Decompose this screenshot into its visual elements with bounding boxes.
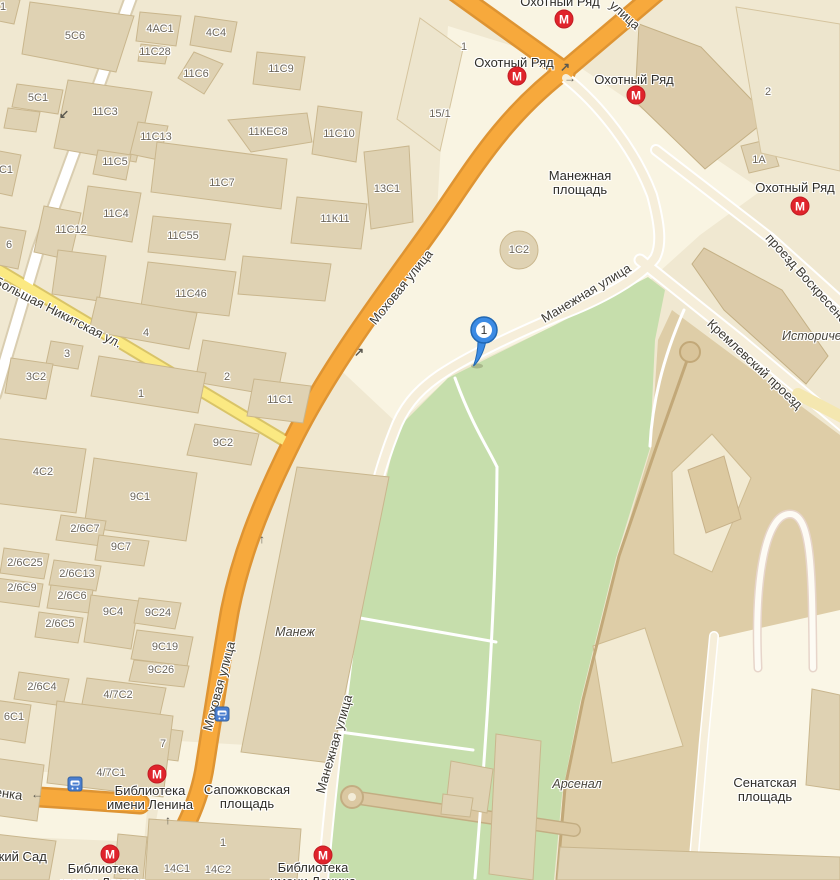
building-label: 1: [0, 1, 6, 13]
building-label: 11КЕС8: [248, 126, 287, 138]
building-label: 2/6С5: [45, 618, 74, 630]
place-label: Сенатскаяплощадь: [733, 776, 796, 804]
place-label: Манежнаяплощадь: [549, 169, 612, 197]
metro-station-icon[interactable]: М: [148, 765, 167, 784]
map-canvas[interactable]: 15С64АС14С411С2811С611С95С111С311С1311КЕ…: [0, 0, 840, 880]
building-label: 11С7: [209, 177, 234, 189]
place-label: Сапожковскаяплощадь: [204, 783, 290, 811]
street-label: проезд Воскресенские Ворота: [762, 230, 840, 375]
bus-stop-icon[interactable]: [68, 777, 83, 792]
building-label: 11С13: [140, 131, 172, 143]
building-label: 11С10: [323, 128, 355, 140]
landmark-label: Исторический музей: [782, 329, 840, 343]
one-way-arrow: ↗: [354, 345, 364, 359]
building-label: 9С26: [148, 664, 174, 676]
landmark-label: Манеж: [275, 625, 315, 639]
building-label: 6С1: [4, 711, 24, 723]
street-label: Большая Никитская ул.: [0, 273, 124, 351]
place-label: Александровский Сад: [0, 850, 47, 864]
building-label: 11С46: [175, 288, 207, 300]
street-label: Манежная улица: [538, 260, 633, 325]
one-way-arrow: ←: [31, 787, 43, 801]
map-labels-layer: 15С64АС14С411С2811С611С95С111С311С1311КЕ…: [0, 0, 840, 880]
building-label: 4С4: [206, 27, 226, 39]
building-label: 9С24: [145, 607, 171, 619]
building-label: 2/6С25: [7, 557, 42, 569]
metro-station-icon[interactable]: М: [627, 86, 646, 105]
one-way-arrow: →: [564, 71, 576, 85]
building-label: 4/7С1: [96, 767, 125, 779]
landmark-label: Арсенал: [552, 777, 601, 791]
building-label: 1С2: [509, 244, 529, 256]
one-way-arrow: ↙: [59, 107, 69, 121]
building-label: 11К11: [320, 213, 349, 225]
building-label: 15/1: [429, 108, 450, 120]
building-label: 3С2: [26, 371, 46, 383]
metro-station-icon[interactable]: М: [101, 845, 120, 864]
building-label: 14С1: [164, 863, 190, 875]
building-label: 11С28: [139, 46, 171, 58]
one-way-arrow: ↑: [259, 532, 265, 546]
building-label: 13С1: [374, 183, 400, 195]
building-label: 6: [6, 239, 12, 251]
building-label: 9С1: [130, 491, 150, 503]
metro-station-icon[interactable]: М: [791, 197, 810, 216]
building-label: 3: [64, 348, 70, 360]
building-label: 4/7С2: [103, 689, 132, 701]
building-label: 2: [224, 371, 230, 383]
building-label: 11С12: [55, 224, 87, 236]
building-label: 11С55: [167, 230, 199, 242]
building-label: 5С6: [65, 30, 85, 42]
building-label: 11С1: [267, 394, 292, 406]
place-label: Библиотекаимени Ленина: [107, 784, 193, 812]
place-label: Охотный Ряд: [520, 0, 599, 9]
building-label: 4С2: [33, 466, 53, 478]
building-label: 9С4: [103, 606, 123, 618]
metro-station-icon[interactable]: М: [508, 67, 527, 86]
marker-number: 1: [481, 323, 488, 337]
building-label: 14С2: [205, 864, 231, 876]
map-marker-pin[interactable]: 1: [467, 314, 501, 370]
metro-station-icon[interactable]: М: [314, 846, 333, 865]
building-label: 9С7: [111, 541, 131, 553]
building-label: 2/6С7: [70, 523, 99, 535]
building-label: 9С19: [152, 641, 178, 653]
street-label: Воздвиженка: [0, 777, 23, 803]
place-label: Охотный Ряд: [755, 181, 834, 195]
street-label: Манежная улица: [313, 693, 356, 795]
place-label: Библиотекаимени Ленина: [60, 862, 146, 880]
street-label: Моховая улица: [366, 247, 436, 328]
building-label: 2/6С6: [57, 590, 86, 602]
building-label: 4: [143, 327, 149, 339]
one-way-arrow: ↑: [165, 813, 171, 827]
building-label: С1: [0, 164, 13, 176]
building-label: 4АС1: [146, 23, 173, 35]
building-label: 1: [138, 388, 144, 400]
street-label: улица: [607, 0, 644, 33]
metro-station-icon[interactable]: М: [555, 10, 574, 29]
building-label: 1: [220, 837, 226, 849]
building-label: 2: [765, 86, 771, 98]
building-label: 11С4: [103, 208, 128, 220]
building-label: 1А: [752, 154, 765, 166]
building-label: 1: [461, 41, 467, 53]
building-label: 7: [160, 738, 166, 750]
building-label: 2/6С4: [27, 681, 56, 693]
bus-stop-icon[interactable]: [215, 707, 230, 722]
building-label: 2/6С13: [59, 568, 94, 580]
building-label: 11С3: [92, 106, 117, 118]
building-label: 9С2: [213, 437, 233, 449]
building-label: 11С6: [183, 68, 208, 80]
building-label: 11С9: [268, 63, 293, 75]
building-label: 2/6С9: [7, 582, 36, 594]
building-label: 11С5: [102, 156, 127, 168]
building-label: 5С1: [28, 92, 48, 104]
place-label: Библиотекаимени Ленина: [270, 861, 356, 880]
